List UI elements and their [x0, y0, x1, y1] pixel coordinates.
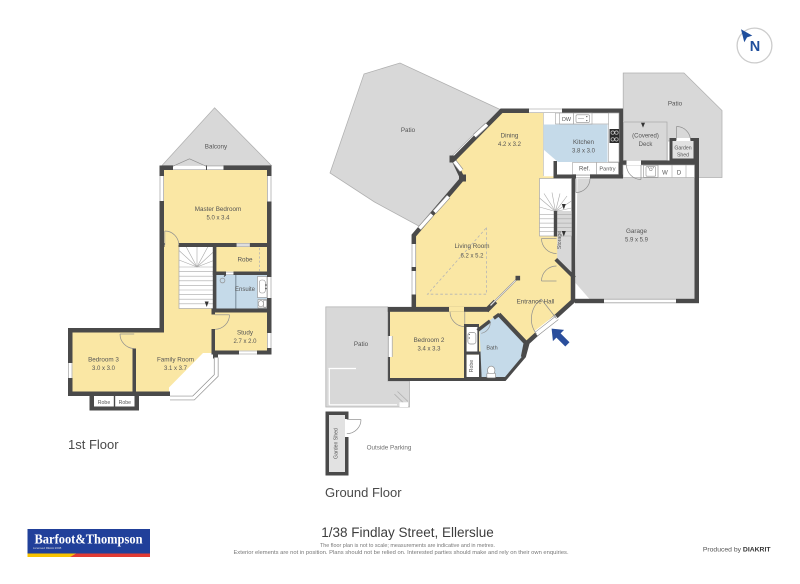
svg-text:Patio: Patio [401, 127, 416, 134]
svg-text:Patio: Patio [354, 341, 369, 348]
svg-text:Shed: Shed [677, 153, 689, 159]
svg-text:Ref.: Ref. [579, 167, 590, 173]
svg-text:Entrance Hall: Entrance Hall [517, 299, 555, 306]
svg-text:Bath: Bath [486, 346, 497, 352]
svg-text:Deck: Deck [639, 142, 654, 148]
svg-text:1st Floor: 1st Floor [68, 437, 119, 452]
svg-text:Garden: Garden [674, 146, 691, 152]
svg-text:Robe: Robe [469, 360, 475, 373]
svg-text:6.2 x 5.2: 6.2 x 5.2 [460, 254, 484, 260]
svg-text:Outside Parking: Outside Parking [367, 445, 412, 452]
svg-text:Storage: Storage [557, 231, 563, 249]
svg-text:The floor plan is not to scale: The floor plan is not to scale; measurem… [320, 543, 495, 549]
svg-text:Produced by DIAKRIT: Produced by DIAKRIT [703, 547, 771, 554]
svg-text:3.0 x 3.0: 3.0 x 3.0 [92, 366, 116, 372]
svg-text:N: N [750, 39, 760, 55]
svg-text:(Covered): (Covered) [632, 134, 659, 140]
svg-text:W: W [662, 171, 668, 177]
svg-text:Family Room: Family Room [157, 357, 194, 364]
svg-text:1/38 Findlay Street, Ellerslue: 1/38 Findlay Street, Ellerslue [321, 525, 494, 540]
svg-text:2.7 x 2.0: 2.7 x 2.0 [233, 339, 257, 345]
svg-text:5.0 x 3.4: 5.0 x 3.4 [206, 216, 230, 222]
svg-text:5.9 x 5.9: 5.9 x 5.9 [625, 238, 649, 244]
svg-text:Living Room: Living Room [455, 243, 490, 250]
svg-text:Barfoot&Thompson: Barfoot&Thompson [35, 532, 143, 547]
svg-text:Garden Shed: Garden Shed [334, 428, 340, 459]
svg-text:Study: Study [237, 330, 254, 337]
svg-text:DW: DW [562, 117, 572, 123]
svg-text:Ensuite: Ensuite [235, 287, 256, 293]
svg-text:Bedroom 2: Bedroom 2 [414, 337, 445, 344]
svg-text:Licensed REAA 2008: Licensed REAA 2008 [33, 546, 62, 550]
svg-text:3.1 x 3.7: 3.1 x 3.7 [164, 366, 188, 372]
svg-text:3.4 x 3.3: 3.4 x 3.3 [417, 347, 441, 353]
svg-text:Dining: Dining [501, 133, 519, 140]
svg-text:Master Bedroom: Master Bedroom [195, 206, 242, 213]
svg-text:3.8 x 3.0: 3.8 x 3.0 [572, 149, 596, 155]
svg-text:Ground Floor: Ground Floor [325, 485, 402, 500]
svg-text:Robe: Robe [98, 400, 111, 406]
svg-text:D: D [677, 171, 682, 177]
svg-text:Robe: Robe [237, 257, 253, 264]
svg-text:Pantry: Pantry [599, 167, 615, 173]
svg-text:Patio: Patio [668, 101, 683, 108]
svg-text:Bedroom 3: Bedroom 3 [88, 357, 119, 364]
svg-text:4.2 x 3.2: 4.2 x 3.2 [498, 142, 522, 148]
svg-text:Garage: Garage [626, 228, 648, 235]
svg-text:Balcony: Balcony [205, 144, 228, 151]
svg-text:Kitchen: Kitchen [573, 139, 595, 146]
svg-text:Robe: Robe [119, 400, 132, 406]
svg-text:Exterior elements are not in p: Exterior elements are not in position. P… [233, 550, 569, 556]
